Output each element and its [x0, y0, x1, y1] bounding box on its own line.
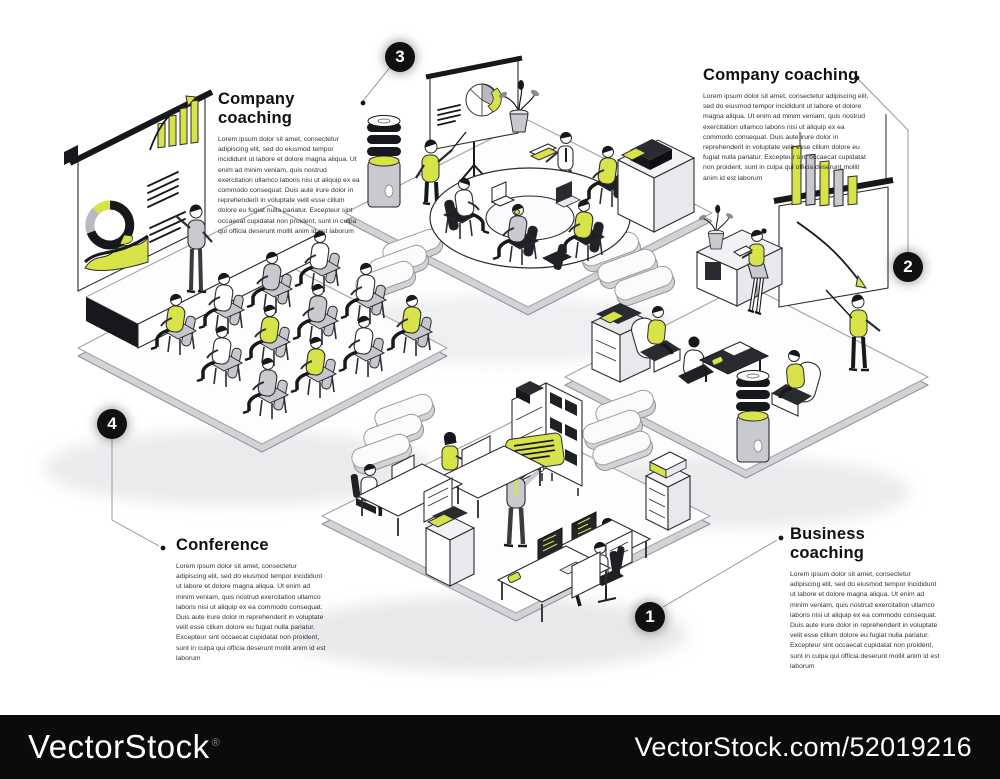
callout-body: Lorem ipsum dolor sit amet, consectetur …	[703, 92, 871, 184]
callout-bottom-left: Conference Lorem ipsum dolor sit amet, c…	[176, 536, 326, 664]
floor-lamp-icon	[736, 371, 770, 463]
callout-badge-1: 1	[635, 602, 665, 632]
callout-body: Lorem ipsum dolor sit amet, consectetur …	[218, 135, 360, 237]
watermark-site-ref: VectorStock.com/52019216	[635, 732, 972, 763]
callout-bottom-right: Business coaching Lorem ipsum dolor sit …	[790, 525, 940, 672]
watermark-bar: VectorStock® VectorStock.com/52019216	[0, 715, 1000, 779]
registered-mark: ®	[212, 737, 221, 749]
callout-body: Lorem ipsum dolor sit amet, consectetur …	[176, 562, 326, 664]
printer-drawer-unit	[646, 452, 690, 530]
callout-badge-4: 4	[97, 409, 127, 439]
callout-badge-2: 2	[893, 252, 923, 282]
callout-top-right: Company coaching Lorem ipsum dolor sit a…	[703, 66, 871, 184]
callout-title: Company coaching	[218, 90, 360, 128]
callout-top-left: Company coaching Lorem ipsum dolor sit a…	[218, 90, 360, 237]
floor-lamp-icon	[367, 116, 401, 208]
callout-title: Business coaching	[790, 525, 940, 563]
stock-image-page: 3 2 4 1 Company coaching Lorem ipsum dol…	[0, 0, 1000, 779]
callout-title: Company coaching	[703, 66, 871, 85]
callout-title: Conference	[176, 536, 326, 555]
callout-badge-3: 3	[385, 42, 415, 72]
callout-body: Lorem ipsum dolor sit amet, consectetur …	[790, 570, 940, 672]
printer-cabinet	[618, 139, 694, 232]
watermark-brand: VectorStock®	[28, 728, 220, 766]
